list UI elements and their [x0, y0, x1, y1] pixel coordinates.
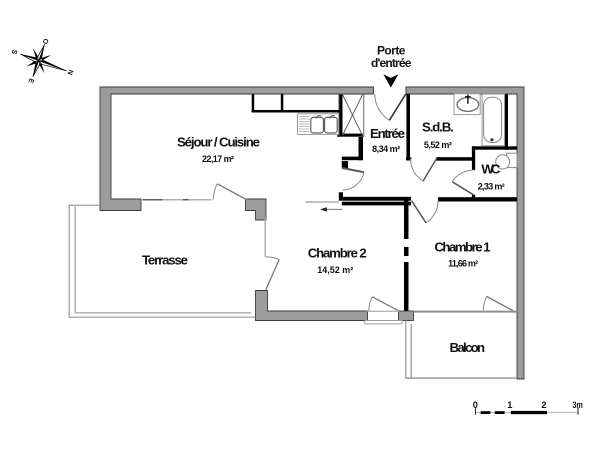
- svg-text:Terrasse: Terrasse: [142, 252, 188, 267]
- svg-text:S.d.B.: S.d.B.: [422, 120, 454, 135]
- svg-text:3m: 3m: [572, 400, 583, 410]
- svg-text:WC: WC: [481, 161, 500, 176]
- svg-text:14,52 m²: 14,52 m²: [317, 265, 353, 275]
- svg-text:1: 1: [507, 400, 512, 410]
- svg-text:Balcon: Balcon: [450, 340, 486, 355]
- svg-text:5,52 m²: 5,52 m²: [424, 140, 452, 150]
- svg-text:22,17 m²: 22,17 m²: [202, 154, 234, 164]
- svg-text:2: 2: [541, 400, 546, 410]
- svg-text:8,34 m²: 8,34 m²: [372, 144, 400, 154]
- svg-text:Séjour / Cuisine: Séjour / Cuisine: [177, 134, 260, 149]
- svg-text:Chambre 1: Chambre 1: [434, 239, 490, 254]
- svg-text:11,66 m²: 11,66 m²: [448, 259, 478, 269]
- svg-text:Chambre 2: Chambre 2: [308, 246, 367, 261]
- svg-text:2,33 m²: 2,33 m²: [478, 182, 505, 192]
- svg-text:0: 0: [473, 400, 478, 410]
- svg-text:d'entrée: d'entrée: [371, 56, 412, 70]
- svg-text:Entrée: Entrée: [370, 126, 405, 141]
